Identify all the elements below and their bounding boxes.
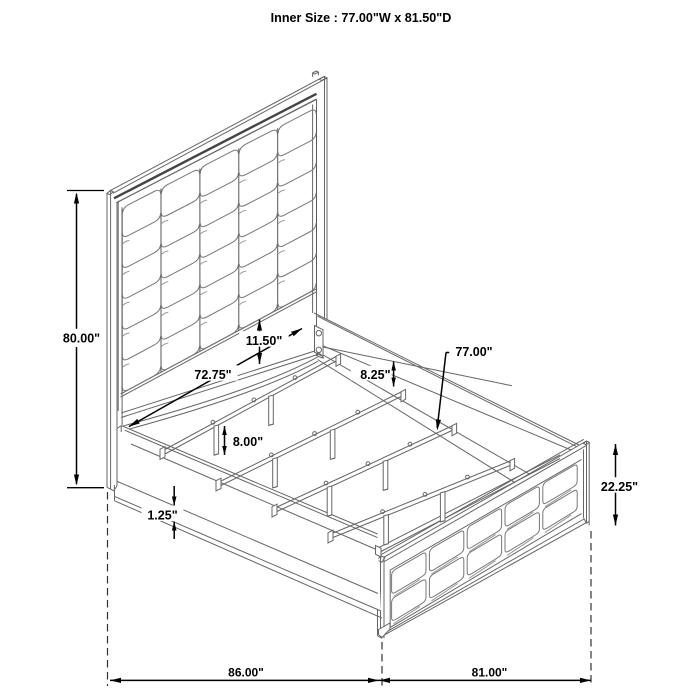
svg-text:77.00": 77.00" <box>455 345 492 359</box>
svg-text:22.25": 22.25" <box>601 480 638 494</box>
svg-text:1.25": 1.25" <box>147 508 177 522</box>
svg-text:Inner Size : 77.00"W x 81.50"D: Inner Size : 77.00"W x 81.50"D <box>271 11 452 25</box>
svg-text:81.00": 81.00" <box>472 665 508 679</box>
svg-text:8.00": 8.00" <box>233 435 263 449</box>
svg-text:80.00": 80.00" <box>63 332 100 346</box>
svg-text:8.25": 8.25" <box>360 368 390 382</box>
svg-text:86.00": 86.00" <box>228 665 264 679</box>
svg-text:11.50": 11.50" <box>246 334 283 348</box>
svg-text:72.75": 72.75" <box>194 368 231 382</box>
